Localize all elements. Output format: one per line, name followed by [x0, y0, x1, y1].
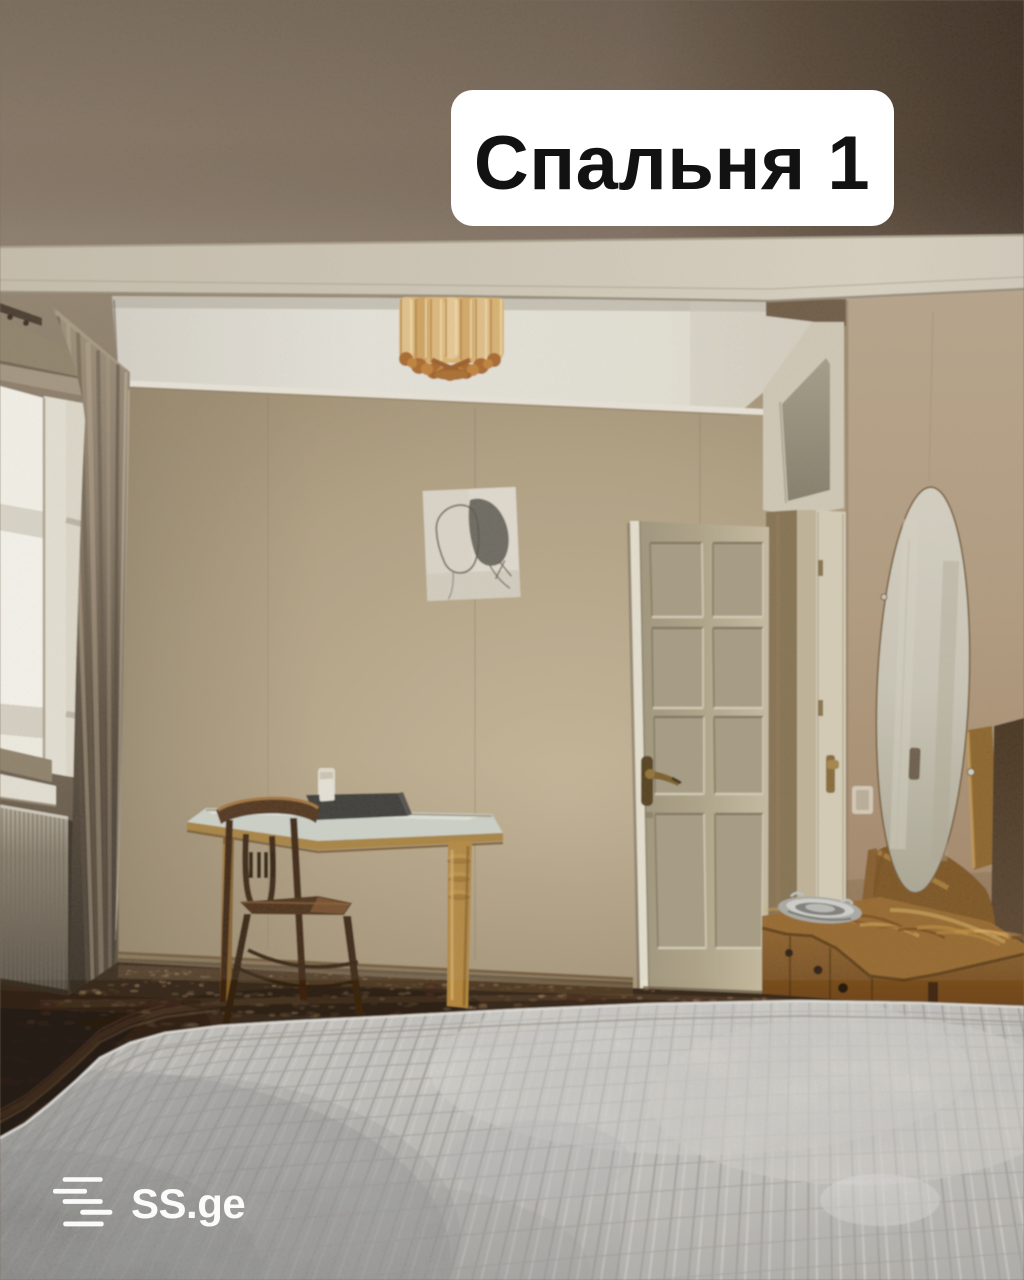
svg-text:SS.ge: SS.ge: [131, 1180, 245, 1227]
svg-text:Спальня 1: Спальня 1: [474, 121, 870, 206]
